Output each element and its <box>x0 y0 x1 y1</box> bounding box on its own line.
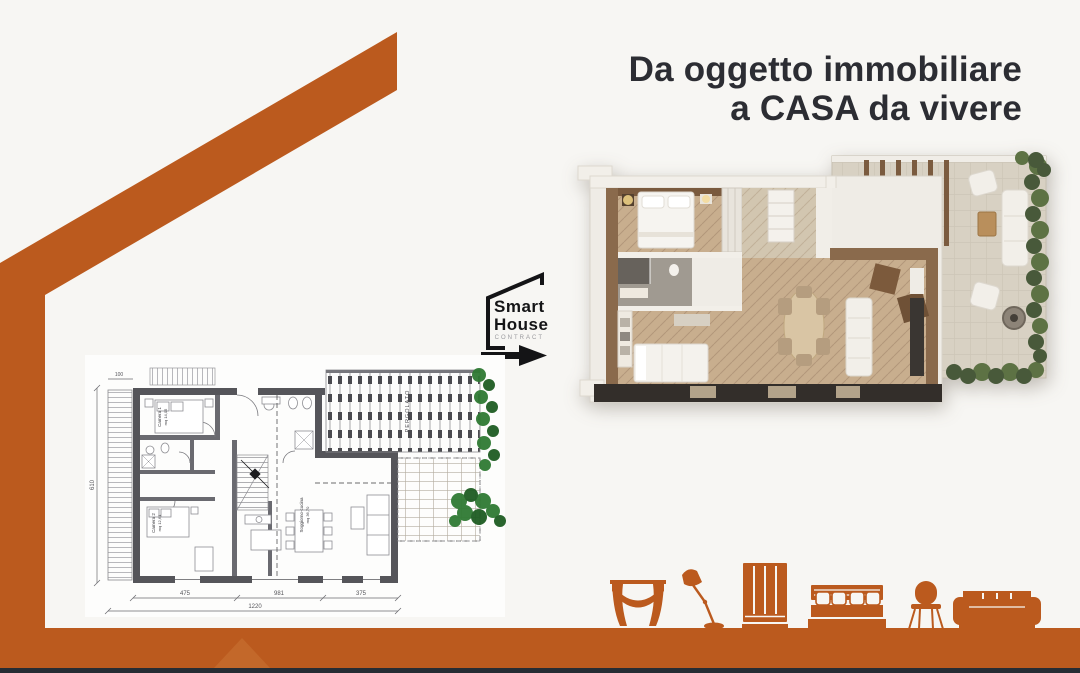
floorplan-3d-render <box>570 146 1062 408</box>
dim-total: 1220 <box>248 604 262 610</box>
pergola-area: PERGOLATO <box>326 370 480 452</box>
headline-line-1: Da oggetto immobiliare <box>629 50 1022 89</box>
coffee-table <box>978 212 996 236</box>
headline-line-2: a CASA da vivere <box>629 89 1022 128</box>
wardrobe-icon <box>742 563 788 629</box>
brown-wall-top <box>830 248 938 260</box>
dim-seg1: 475 <box>180 591 191 597</box>
chair-icon <box>906 581 946 629</box>
kitchen-bedroom2 <box>618 311 742 384</box>
camera1-mq: mq 14,05 <box>163 408 168 425</box>
outdoor-sofa <box>1002 190 1028 266</box>
logo-subtitle: CONTRACT <box>495 335 544 341</box>
media-cabinet <box>910 298 924 376</box>
curtain-icon <box>610 580 666 628</box>
bedroom-1 <box>618 188 742 252</box>
wardrobe-white <box>722 188 742 252</box>
logo-word-house: House <box>494 315 548 334</box>
vanity <box>620 288 648 298</box>
dim-seg3: 375 <box>356 591 367 597</box>
bathroom <box>618 258 692 306</box>
brochure-slide: Da oggetto immobiliare a CASA da vivere … <box>0 0 1080 673</box>
footer-dark-line <box>0 668 1080 673</box>
soggiorno-label: Soggiorno-cucina <box>299 497 304 533</box>
upper-cabinets <box>674 314 710 326</box>
balcony-hatch-strip <box>108 390 132 580</box>
dim-left: 610 <box>90 479 96 490</box>
floorplan-2d: PERGOLATO Camera 1 mq 14,05 Camera 2 mq … <box>55 355 515 627</box>
sofa-icon <box>953 591 1041 629</box>
external-stairs <box>150 368 215 385</box>
shower <box>618 258 650 284</box>
bed-icon <box>808 585 886 629</box>
headline: Da oggetto immobiliare a CASA da vivere <box>629 50 1022 128</box>
hallway <box>742 188 832 258</box>
camera1-label: Camera 1 <box>157 407 162 427</box>
camera2-label: Camera 2 <box>151 513 156 533</box>
wall-top <box>590 176 834 188</box>
lamp-icon <box>678 568 724 630</box>
sofa-white <box>846 298 872 376</box>
dim-top: 100 <box>115 372 124 378</box>
dim-seg2: 981 <box>274 591 285 597</box>
footer-orange-bar <box>0 628 1080 668</box>
fire-pit-center <box>1010 314 1018 322</box>
soggiorno-mq: mq 36,70 <box>305 506 310 523</box>
left-wood-wall <box>606 188 618 384</box>
camera2-mq: mq 12,64 <box>157 514 162 531</box>
logo-word-smart: Smart <box>494 297 545 316</box>
pergolato-label: PERGOLATO <box>405 390 411 433</box>
living-dining <box>742 248 938 384</box>
wc <box>669 264 679 276</box>
house-3d <box>578 166 942 402</box>
